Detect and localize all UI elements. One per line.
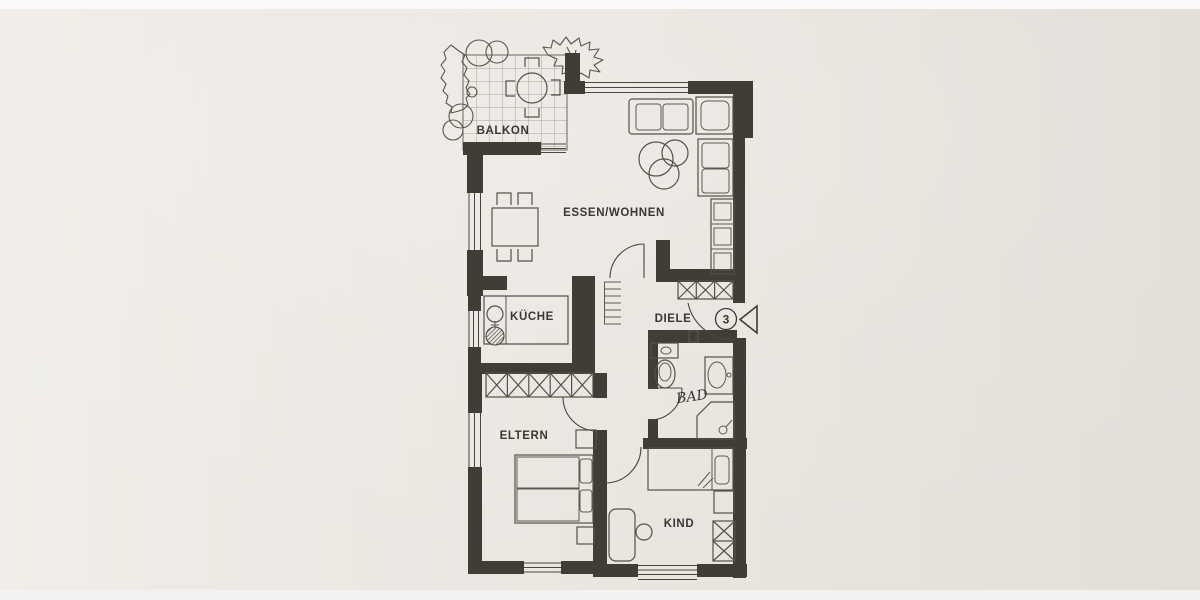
- top-strip: [0, 0, 1200, 9]
- floor-plan-svg: BALKON: [0, 0, 1200, 600]
- floor-plan-photo: BALKON: [0, 0, 1200, 600]
- room-label-diele: DIELE: [655, 313, 692, 325]
- unit-number: 3: [723, 313, 730, 327]
- room-label-balkon: BALKON: [477, 125, 530, 137]
- room-label-kueche: KÜCHE: [510, 310, 554, 323]
- bottom-strip: [0, 590, 1200, 600]
- room-label-kind: KIND: [664, 518, 695, 530]
- room-label-essen-wohnen: ESSEN/WOHNEN: [563, 207, 665, 219]
- kitchen-stove-icon: [486, 327, 504, 345]
- room-label-eltern: ELTERN: [500, 430, 549, 442]
